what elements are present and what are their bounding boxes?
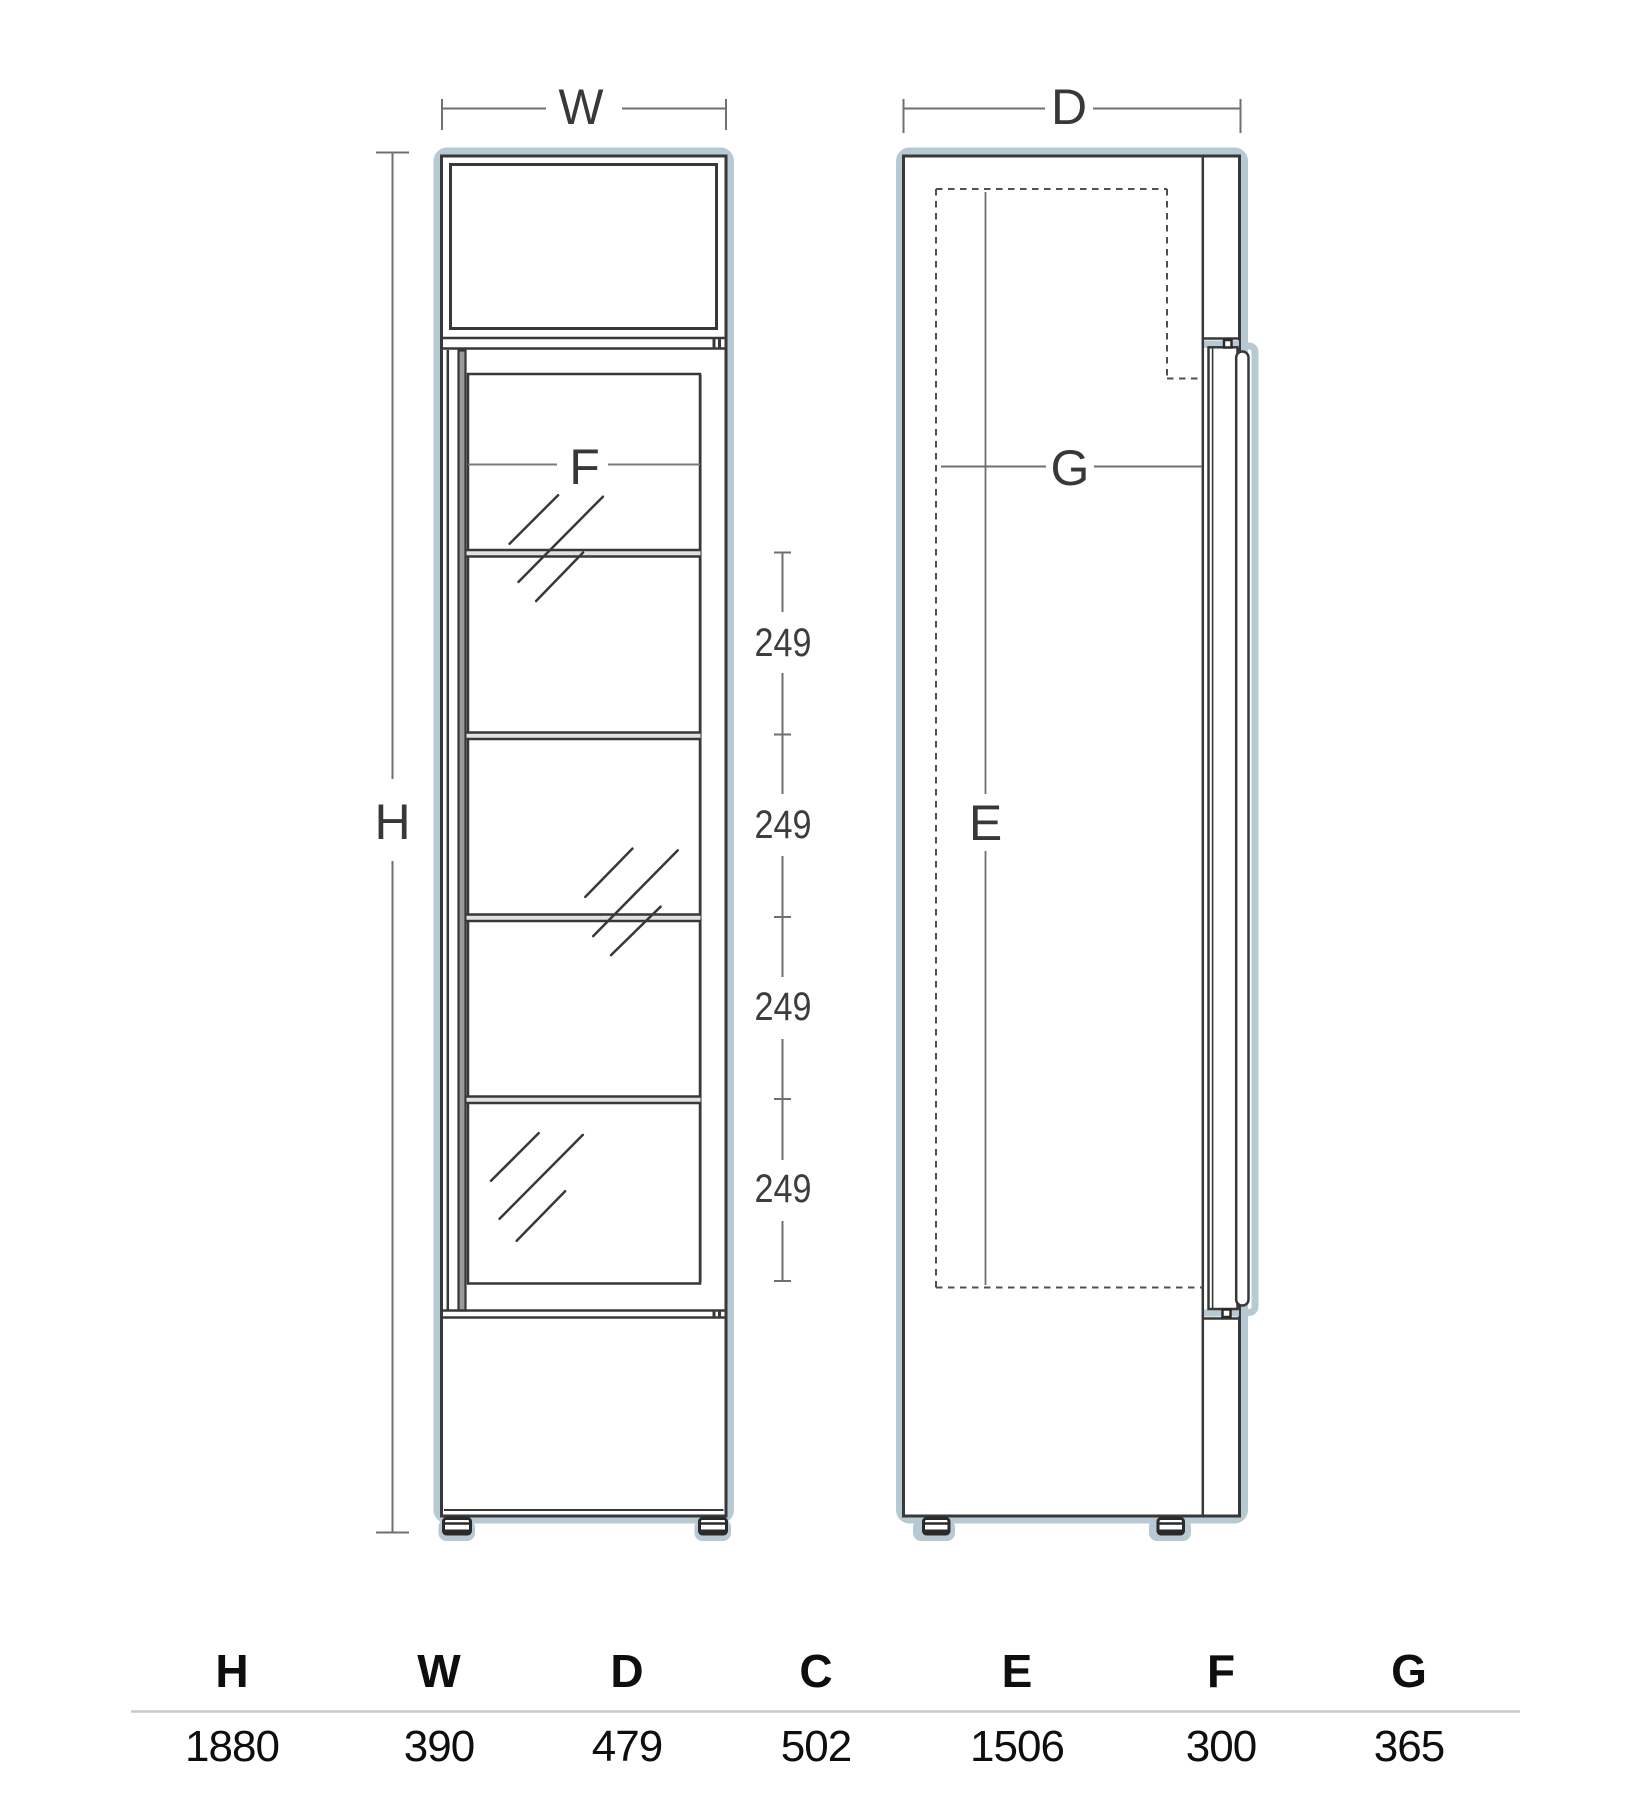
svg-text:H: H	[215, 1645, 248, 1697]
svg-text:F: F	[569, 439, 600, 495]
svg-text:365: 365	[1374, 1722, 1444, 1771]
svg-text:1506: 1506	[970, 1722, 1064, 1771]
svg-text:249: 249	[755, 985, 812, 1029]
svg-text:F: F	[1207, 1645, 1235, 1697]
svg-text:W: W	[559, 79, 605, 135]
svg-text:1880: 1880	[185, 1722, 279, 1771]
svg-text:E: E	[1002, 1645, 1033, 1697]
svg-text:W: W	[417, 1645, 461, 1697]
svg-text:479: 479	[592, 1722, 662, 1771]
svg-text:502: 502	[781, 1722, 851, 1771]
svg-text:249: 249	[755, 803, 812, 847]
svg-text:G: G	[1391, 1645, 1427, 1697]
svg-text:G: G	[1051, 440, 1090, 496]
svg-text:390: 390	[404, 1722, 474, 1771]
svg-text:C: C	[799, 1645, 832, 1697]
svg-text:D: D	[1051, 79, 1087, 135]
svg-text:300: 300	[1186, 1722, 1256, 1771]
svg-text:H: H	[374, 794, 410, 850]
svg-text:249: 249	[755, 1167, 812, 1211]
svg-text:E: E	[969, 795, 1002, 851]
svg-text:D: D	[610, 1645, 643, 1697]
svg-text:249: 249	[755, 621, 812, 665]
